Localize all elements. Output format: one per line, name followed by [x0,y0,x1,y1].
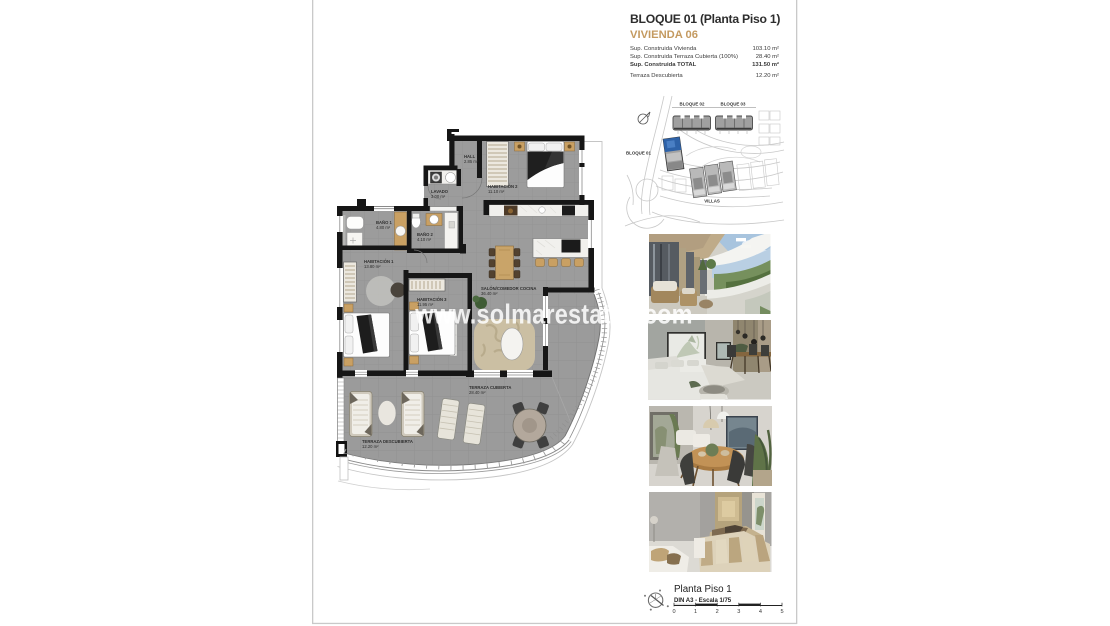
svg-text:12.20 m²: 12.20 m² [756,73,779,79]
svg-text:3.00 m²: 3.00 m² [431,194,446,199]
svg-text:12.20 m²: 12.20 m² [362,444,379,449]
svg-text:VILLAS: VILLAS [704,199,720,204]
svg-text:BLOQUE 01 (Planta Piso 1): BLOQUE 01 (Planta Piso 1) [630,12,780,26]
svg-text:11.10 m²: 11.10 m² [488,189,505,194]
svg-text:0: 0 [672,609,675,615]
svg-text:www.solmarestates.com: www.solmarestates.com [414,300,692,330]
svg-text:Terraza Descubierta: Terraza Descubierta [630,73,683,79]
svg-text:1: 1 [694,609,697,615]
svg-text:BLOQUE 01: BLOQUE 01 [626,151,651,156]
svg-text:3: 3 [737,609,740,615]
svg-text:13.80 m²: 13.80 m² [364,264,381,269]
svg-text:DIN A3 - Escala 1/75: DIN A3 - Escala 1/75 [674,598,732,604]
svg-text:4: 4 [759,609,762,615]
svg-text:4.10 m²: 4.10 m² [417,237,432,242]
svg-text:36.40 m²: 36.40 m² [481,291,498,296]
svg-text:103.10 m²: 103.10 m² [752,46,779,52]
svg-text:2.85 m²: 2.85 m² [464,159,479,164]
svg-text:Planta Piso 1: Planta Piso 1 [674,584,732,595]
svg-text:5: 5 [780,609,783,615]
svg-text:Sup. Construida Terraza Cubier: Sup. Construida Terraza Cubierta (100%) [630,54,738,60]
svg-text:4.80 m²: 4.80 m² [376,225,391,230]
svg-text:2: 2 [716,609,719,615]
svg-text:28.40 m²: 28.40 m² [756,54,779,60]
svg-text:VIVIENDA 06: VIVIENDA 06 [630,29,698,41]
svg-text:BLOQUE 02: BLOQUE 02 [680,102,705,107]
svg-text:Sup. Construida TOTAL: Sup. Construida TOTAL [630,62,697,68]
svg-text:28.40 m²: 28.40 m² [469,390,486,395]
svg-text:Sup. Construida Vivienda: Sup. Construida Vivienda [630,46,697,52]
svg-text:131.50 m²: 131.50 m² [752,61,779,68]
svg-text:BLOQUE 03: BLOQUE 03 [721,102,746,107]
